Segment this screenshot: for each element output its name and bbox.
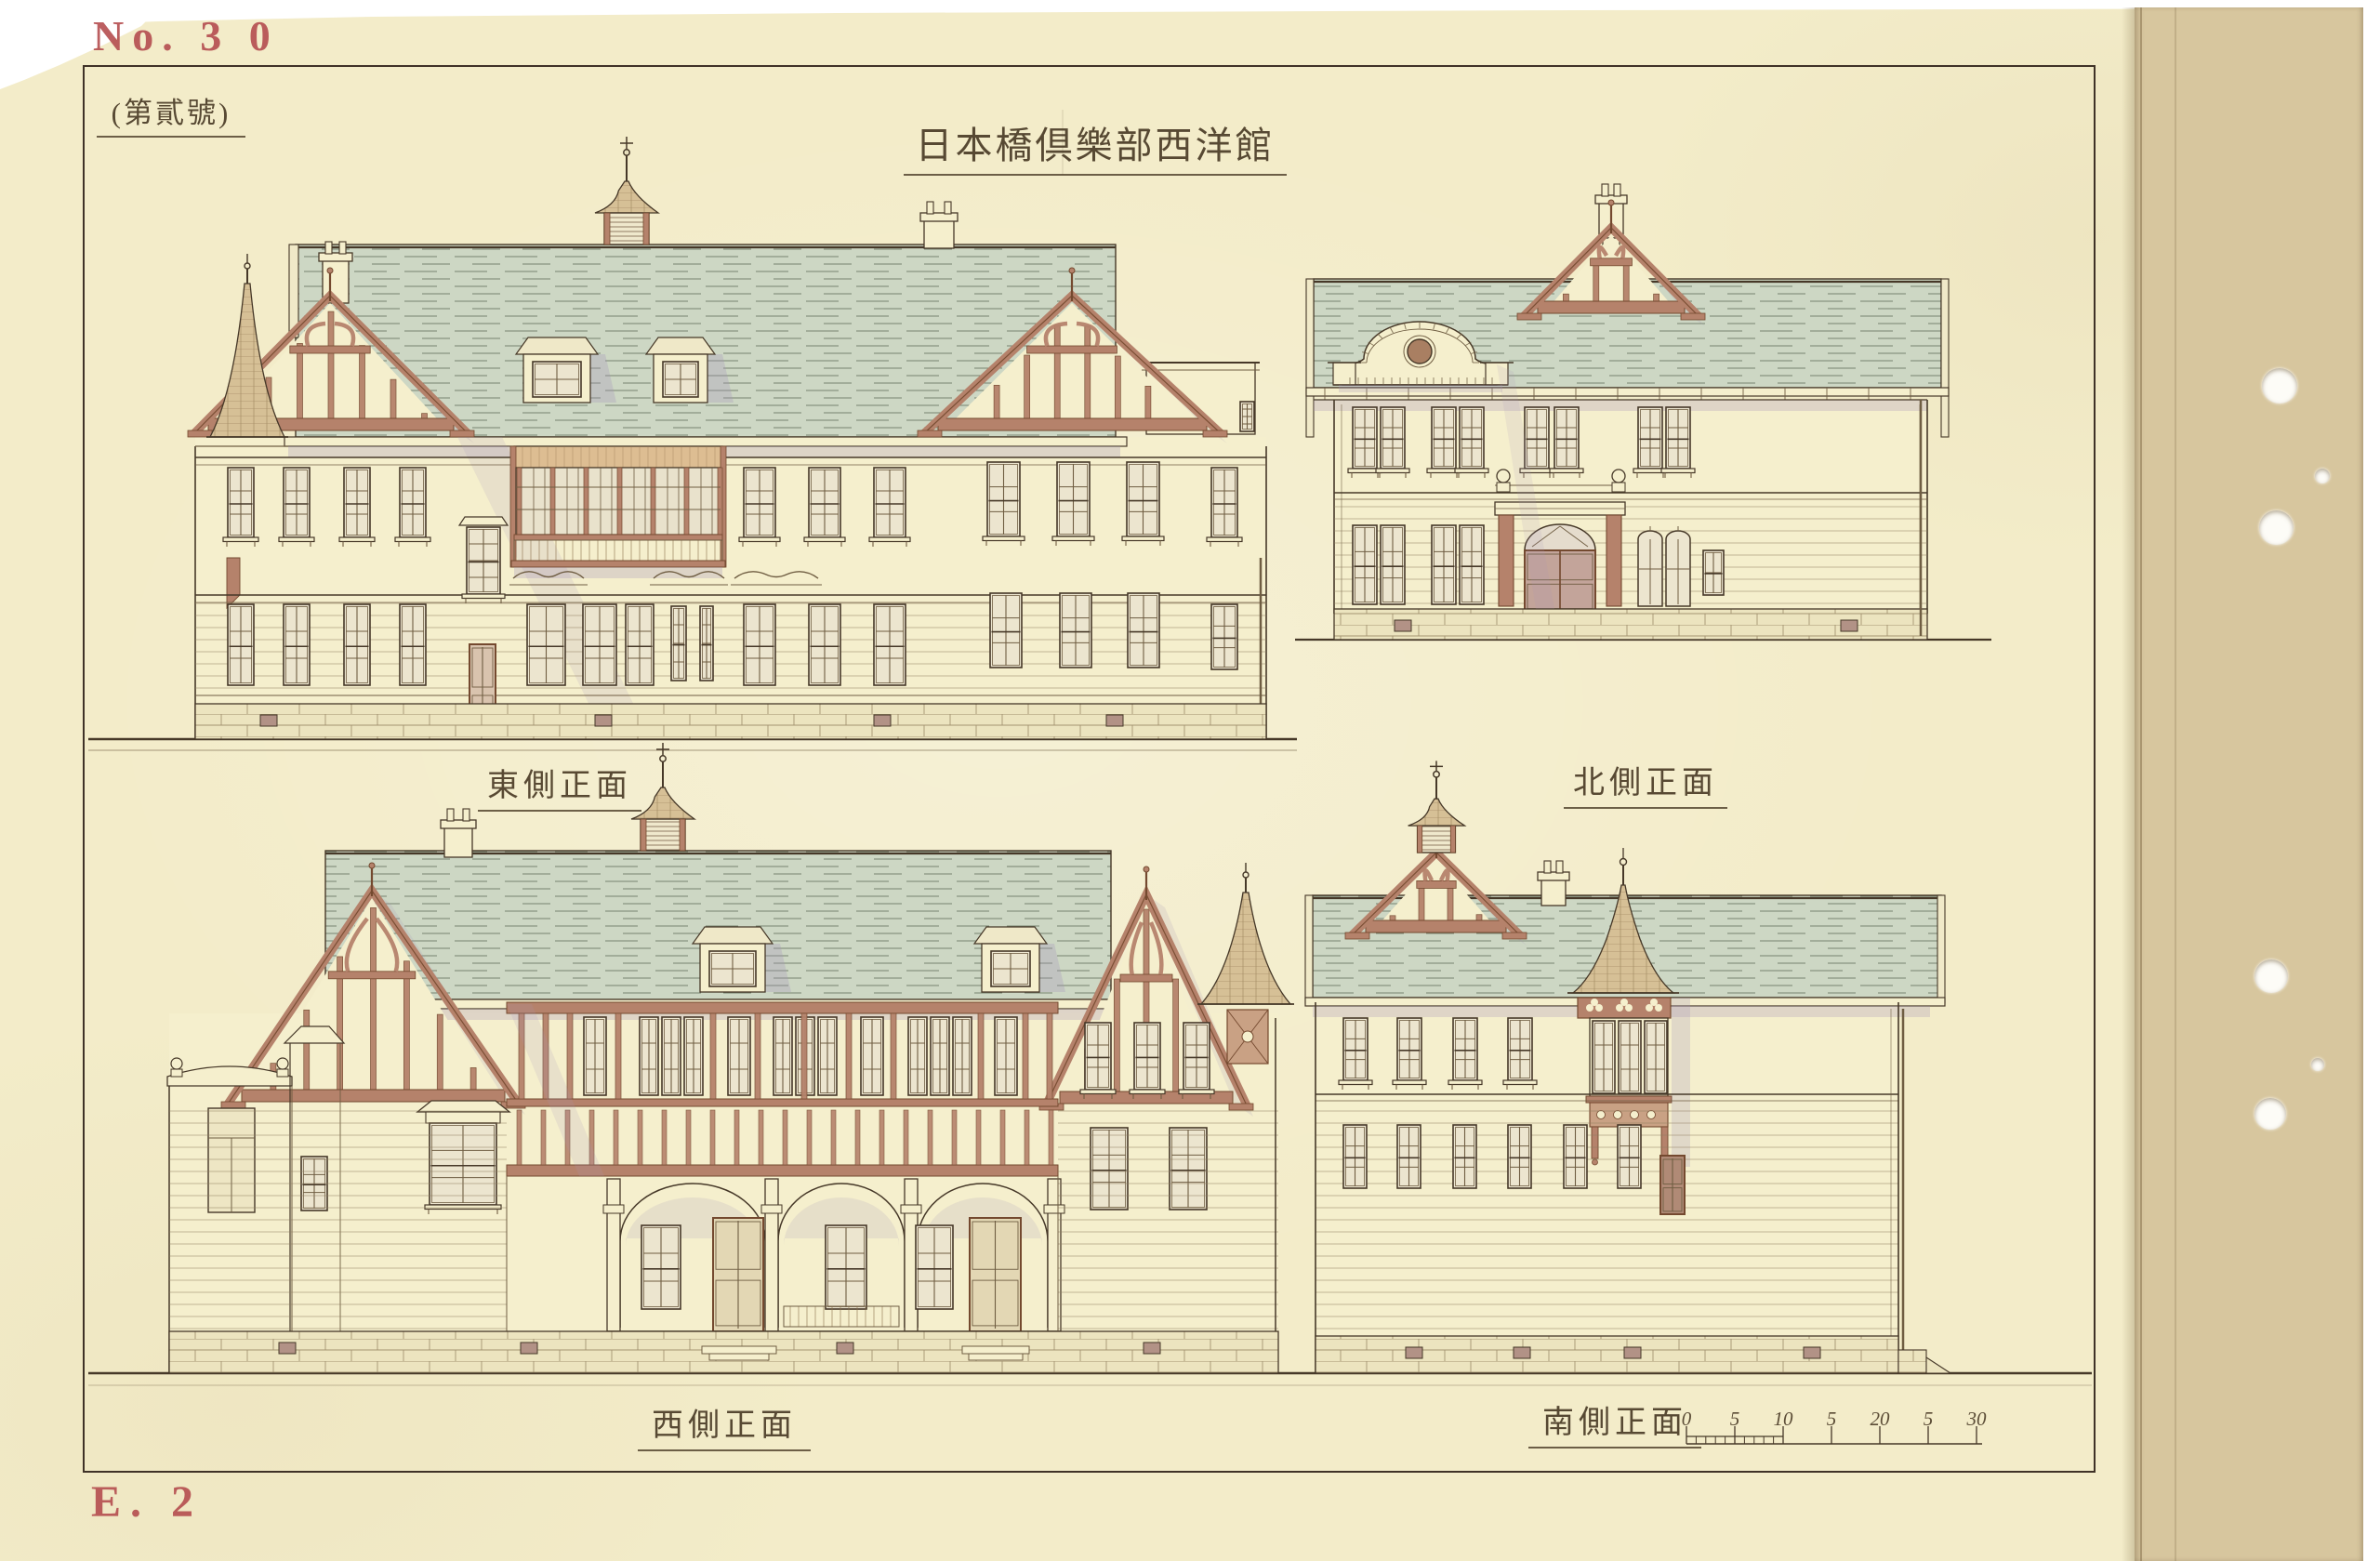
binding-crease [2140, 7, 2142, 1561]
north-elevation [1306, 184, 1949, 640]
scale-tick-label: 10 [1772, 1408, 1794, 1431]
drawing-title: 日本橋倶樂部西洋館 [904, 115, 1287, 176]
binding-shadow [2122, 7, 2135, 1561]
east-elevation [188, 137, 1266, 739]
scan-background [2363, 0, 2380, 1561]
elevation-label-west: 西側正面 [638, 1399, 811, 1451]
binding-strip [2135, 7, 2363, 1561]
punch-hole [2262, 368, 2297, 403]
elevation-label-east: 東側正面 [478, 760, 641, 812]
scale-tick-label: 30 [1965, 1408, 1988, 1431]
scale-tick-label: 5 [1820, 1408, 1843, 1431]
punch-hole [2259, 510, 2294, 545]
scanned-architectural-sheet: No. 3 0 (第貳號) 日本橋倶樂部西洋館 東側正面 北側正面 西側正面 南… [0, 0, 2380, 1561]
punch-hole-small [2311, 1058, 2324, 1071]
elevation-drawings [0, 0, 2380, 1561]
scale-tick-label: 5 [1917, 1408, 1939, 1431]
scale-tick-label: 20 [1869, 1408, 1891, 1431]
punch-hole-small [2315, 469, 2330, 483]
plate-number-stamp: No. 3 0 [93, 11, 279, 60]
sheet-code-stamp: E. 2 [91, 1476, 203, 1528]
elevation-label-north: 北側正面 [1564, 757, 1727, 809]
south-elevation [1305, 761, 1950, 1373]
binding-crease [2175, 7, 2176, 1561]
punch-hole [2254, 959, 2288, 993]
scale-tick-label: 5 [1724, 1408, 1746, 1431]
punch-hole [2254, 1098, 2286, 1130]
plate-label: (第貳號) [97, 89, 245, 138]
scale-tick-label: 0 [1675, 1408, 1698, 1431]
west-elevation [167, 743, 1294, 1373]
